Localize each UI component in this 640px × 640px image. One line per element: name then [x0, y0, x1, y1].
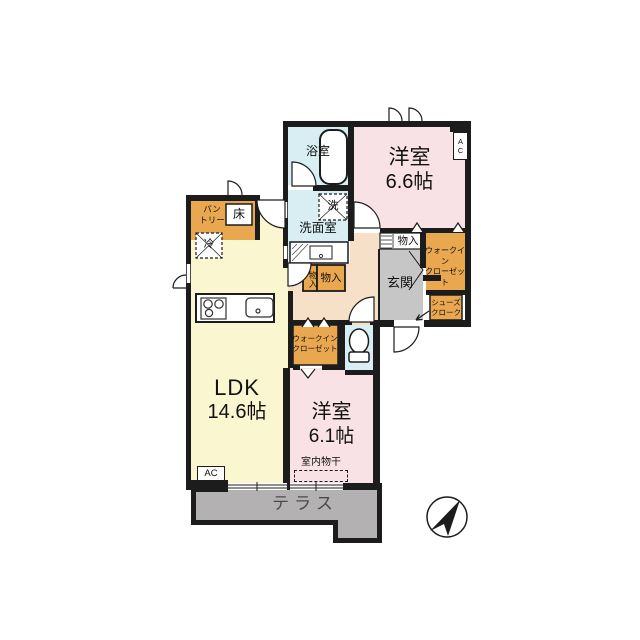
- bedroom1-window-arc-1: [389, 108, 402, 121]
- toko-label: 床: [226, 208, 252, 222]
- bedroom1-label: 洋室: [354, 146, 465, 170]
- ac-ldk-box: AC: [197, 466, 225, 481]
- washer-label: 洗: [319, 200, 347, 213]
- shoes-cloak-label-line1: シューズ: [431, 298, 461, 307]
- ldk-side-window-arc: [173, 275, 186, 288]
- floorplan-graphics: [0, 0, 640, 640]
- bedroom2-size: 6.1帖: [290, 426, 373, 448]
- refrigerator-label: 冷: [196, 238, 222, 250]
- indoor-drying-label: 室内物干: [292, 457, 350, 469]
- shoes-cloak-label-line2: クローク: [431, 308, 461, 317]
- washroom-label: 洗面室: [288, 221, 348, 235]
- entrance-door-arc: [394, 327, 419, 352]
- toilet-icon: [349, 329, 369, 362]
- vanity-sink-icon: [310, 246, 332, 259]
- sink-icon: [246, 298, 273, 317]
- pantry-window-arc: [228, 181, 242, 195]
- entrance-label: 玄関: [378, 276, 422, 291]
- ac-ldk-label: AC: [204, 468, 217, 479]
- bath-label: 浴室: [288, 145, 348, 159]
- ldk-size: 14.6帖: [191, 401, 283, 424]
- walkin-closet-2-label-line1: ウォークイン: [293, 334, 338, 343]
- ldk-label: LDK: [191, 375, 283, 400]
- walkin-closet-main-label-line2: クローゼット: [425, 267, 465, 287]
- walkin-closet-main-label-line1: ウォークイン: [425, 246, 465, 266]
- walkin-closet-2-label-line2: クローゼット: [293, 344, 338, 353]
- ac-bedroom-label: AC: [456, 137, 465, 155]
- compass-north-icon: [427, 497, 467, 537]
- pantry-label-line1: パン: [203, 204, 220, 214]
- bedroom1-size: 6.6帖: [354, 171, 465, 194]
- bedroom2-label: 洋室: [290, 401, 373, 424]
- indoor-drying-box: [294, 470, 348, 482]
- terrace-label: テラス: [230, 494, 380, 514]
- floor-plan: 浴室 洋室 6.6帖 洗面室 洗 冷 床 パン トリー 物入 物入 物入 ウォー…: [0, 0, 640, 640]
- storage-hall-label: 物入: [316, 272, 346, 284]
- terrace-windows: [228, 482, 343, 491]
- storage-entrance-label: 物入: [392, 235, 424, 247]
- bedroom1-window-arc-2: [409, 108, 422, 121]
- ac-bedroom-box: AC: [453, 132, 468, 160]
- pantry-label-line2: トリー: [199, 215, 225, 225]
